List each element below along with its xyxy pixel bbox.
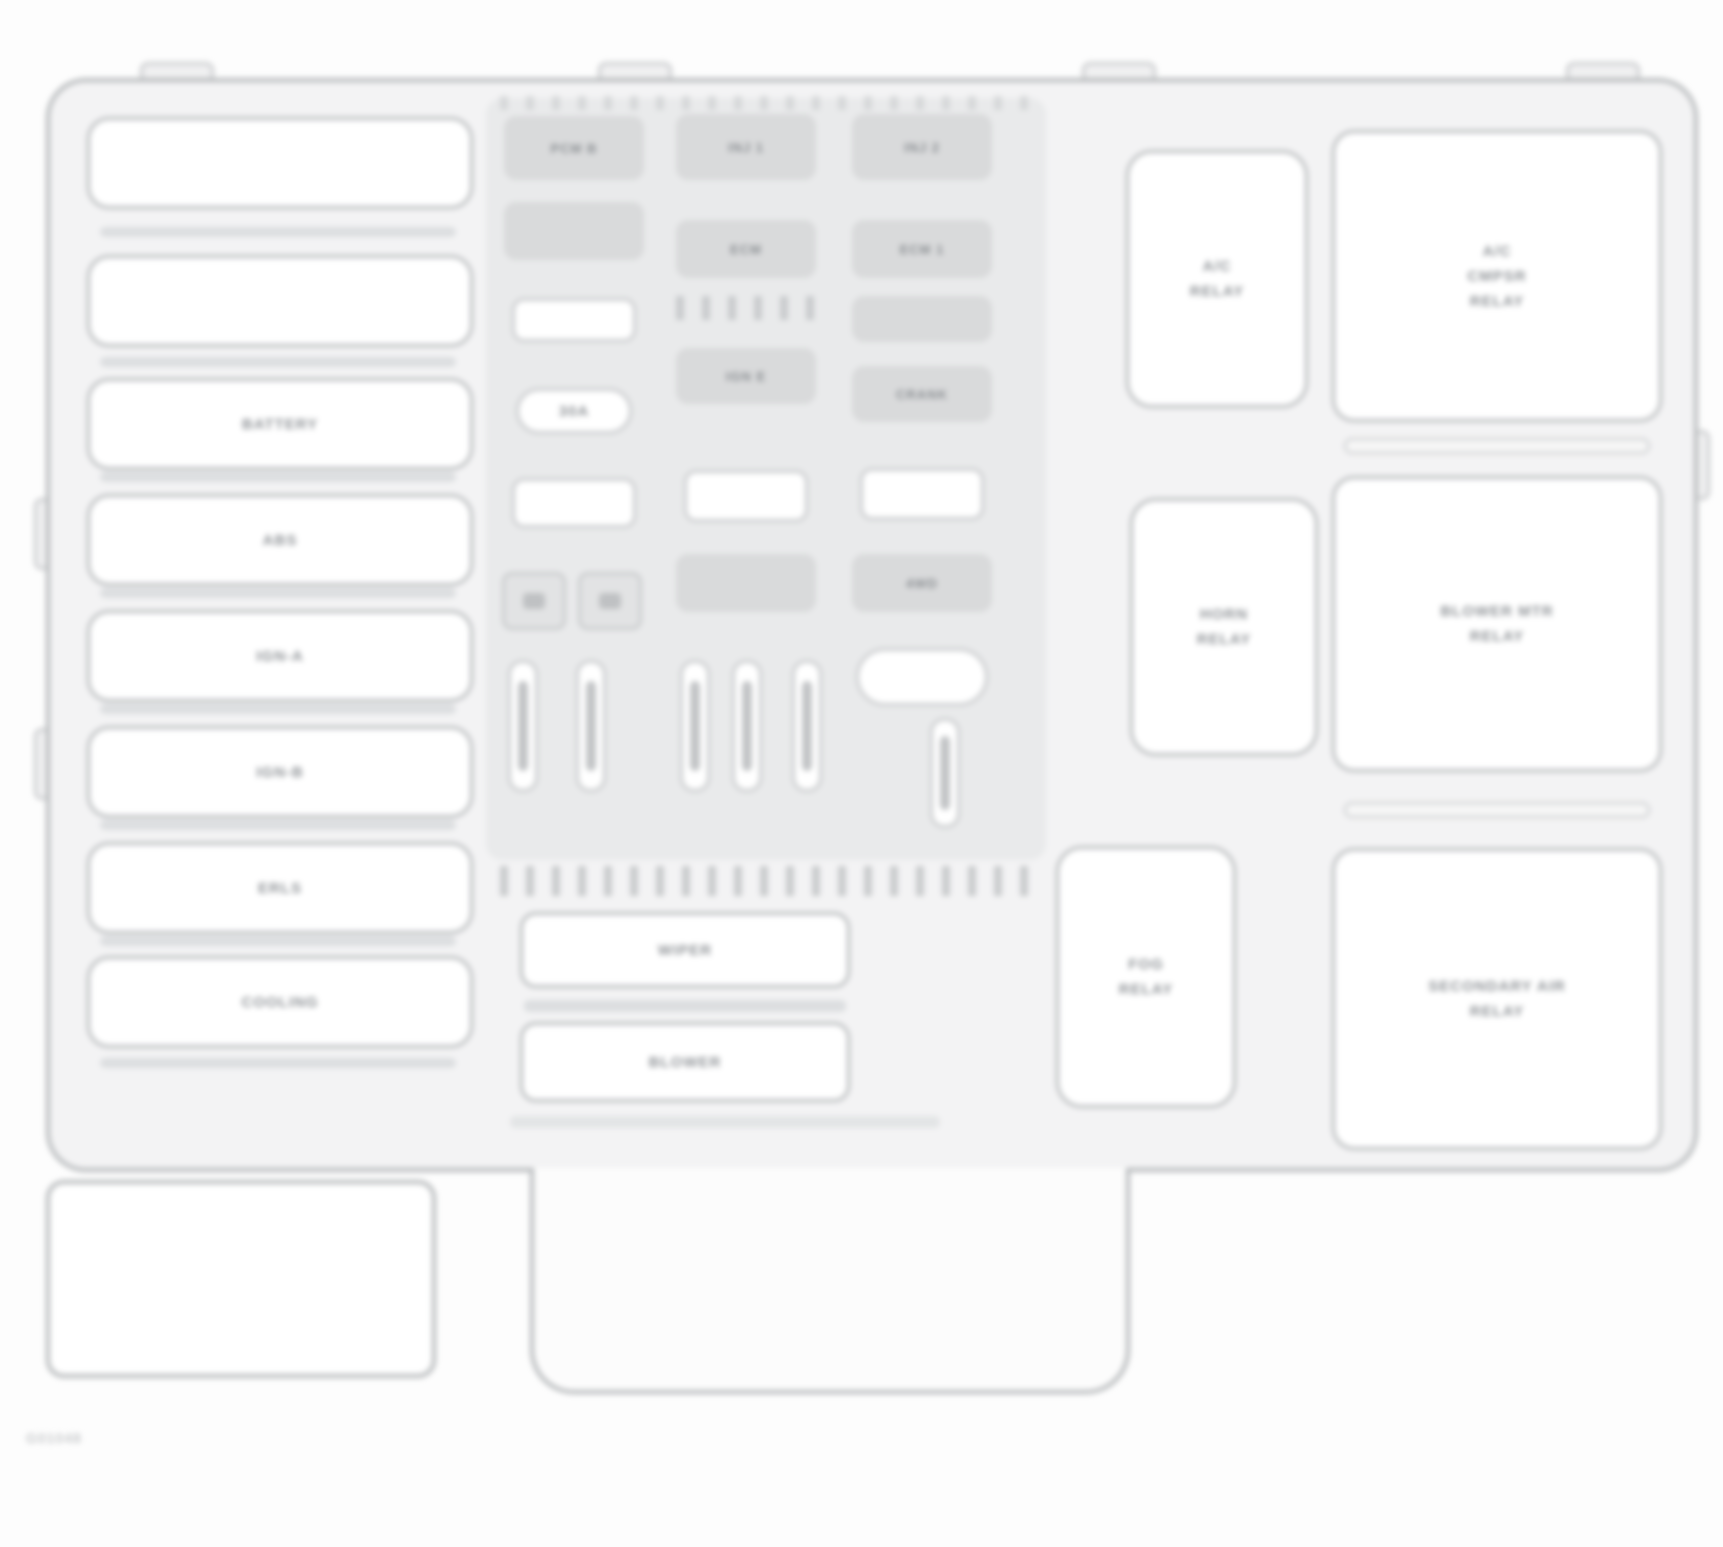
lower-extension xyxy=(530,1168,1130,1394)
fuse-slot xyxy=(512,478,636,528)
maxi-fuse-slot: ERLS xyxy=(87,842,473,934)
relay-label-line: RELAY xyxy=(1197,631,1251,648)
fuse-terminal xyxy=(523,593,545,609)
mini-fuse-element xyxy=(940,736,950,811)
relay-box-large-label: SECONDARY AIRRELAY xyxy=(1335,851,1659,1147)
lower-compartment xyxy=(46,1180,436,1378)
maxi-fuse-slot-label xyxy=(90,258,470,344)
mini-fuse-element xyxy=(586,681,596,772)
divider xyxy=(100,472,456,482)
fuse-pair xyxy=(578,572,642,630)
relay-label-line: RELAY xyxy=(1470,293,1524,310)
fuse-terminal xyxy=(599,593,621,609)
fuse: INJ 1 xyxy=(676,114,816,180)
wide-fuse-slot: WIPER xyxy=(520,912,850,988)
wide-fuse-slot-label: WIPER xyxy=(523,915,847,985)
relay-box-large: A/CCMPSRRELAY xyxy=(1332,130,1662,422)
divider xyxy=(100,227,456,237)
fuse-slot-label: 30A xyxy=(519,391,629,431)
fuse: ECM xyxy=(676,220,816,278)
mini-fuse-element xyxy=(690,681,700,772)
relay-label-line: FOG xyxy=(1128,956,1164,973)
mini-fuse-slot xyxy=(508,660,538,792)
fuse-slot xyxy=(684,470,808,522)
divider xyxy=(1344,438,1650,454)
maxi-fuse-slot-label: ERLS xyxy=(90,845,470,931)
fuse: INJ 2 xyxy=(852,114,992,180)
terminal-comb xyxy=(500,866,1040,896)
relay-label-line: A/C xyxy=(1483,243,1512,260)
mini-fuse-element xyxy=(742,681,752,772)
relay-label-line: A/C xyxy=(1203,258,1232,275)
fuse-label: IGN E xyxy=(676,348,816,404)
maxi-fuse-slot-label: BATTERY xyxy=(90,381,470,467)
mini-fuse-slot xyxy=(930,718,960,828)
relay-label-line: RELAY xyxy=(1119,981,1173,998)
fuse-label: ECM 1 xyxy=(852,220,992,278)
fuse-block-diagram: BATTERYABSIGN-AIGN-BERLSCOOLINGPCM B30AI… xyxy=(0,0,1723,1547)
fuse-slot xyxy=(856,648,988,706)
fuse-slot xyxy=(860,468,984,520)
divider xyxy=(100,1058,456,1068)
divider xyxy=(1344,802,1650,818)
relay-box-label: FOGRELAY xyxy=(1059,849,1233,1105)
fuse-label xyxy=(504,202,644,260)
wide-fuse-slot: BLOWER xyxy=(520,1022,850,1102)
maxi-fuse-slot-label: IGN-B xyxy=(90,729,470,815)
relay-label-line: SECONDARY AIR xyxy=(1428,978,1565,995)
mini-fuse-slot xyxy=(732,660,762,792)
terminal-comb xyxy=(676,296,816,320)
maxi-fuse-slot: BATTERY xyxy=(87,378,473,470)
fuse-label: ECM xyxy=(676,220,816,278)
fuse-label xyxy=(676,554,816,612)
maxi-fuse-slot-label: COOLING xyxy=(90,959,470,1045)
mini-fuse-slot xyxy=(792,660,822,792)
relay-box-large-label: A/CCMPSRRELAY xyxy=(1335,133,1659,419)
fuse-pair xyxy=(502,572,566,630)
fuse xyxy=(504,202,644,260)
relay-box: FOGRELAY xyxy=(1056,846,1236,1108)
fuse-label: INJ 2 xyxy=(852,114,992,180)
fuse: PCM B xyxy=(504,116,644,180)
fuse xyxy=(852,296,992,342)
mini-fuse-element xyxy=(802,681,812,772)
fuse: ECM 1 xyxy=(852,220,992,278)
maxi-fuse-slot: ABS xyxy=(87,494,473,586)
fuse-block-diagram-page: BATTERYABSIGN-AIGN-BERLSCOOLINGPCM B30AI… xyxy=(0,0,1723,1547)
mini-fuse-element xyxy=(518,681,528,772)
maxi-fuse-slot-label: IGN-A xyxy=(90,613,470,699)
relay-box-large-label: BLOWER MTRRELAY xyxy=(1335,479,1659,769)
fuse-label xyxy=(852,296,992,342)
mini-fuse-slot xyxy=(576,660,606,792)
maxi-fuse-slot-label xyxy=(90,120,470,206)
fuse-label: INJ 1 xyxy=(676,114,816,180)
relay-box-label: HORNRELAY xyxy=(1133,501,1315,753)
fuse-slot: 30A xyxy=(516,388,632,434)
divider xyxy=(510,1116,940,1128)
fuse: 4WD xyxy=(852,554,992,612)
fuse: CRANK xyxy=(852,366,992,422)
relay-label-line: RELAY xyxy=(1470,1003,1524,1020)
relay-box: HORNRELAY xyxy=(1130,498,1318,756)
terminal-comb xyxy=(500,96,1040,110)
relay-label-line: RELAY xyxy=(1190,283,1244,300)
divider xyxy=(524,1000,846,1012)
mini-fuse-slot xyxy=(680,660,710,792)
divider xyxy=(100,357,456,367)
fuse-slot-label xyxy=(859,651,985,703)
divider xyxy=(100,588,456,598)
fuse-label: CRANK xyxy=(852,366,992,422)
relay-label-line: HORN xyxy=(1200,606,1248,623)
figure-code: G01048 xyxy=(26,1430,82,1446)
fuse-label: 4WD xyxy=(852,554,992,612)
relay-box: A/CRELAY xyxy=(1126,150,1308,408)
relay-label-line: RELAY xyxy=(1470,628,1524,645)
fuse-slot xyxy=(512,298,636,342)
maxi-fuse-slot xyxy=(87,255,473,347)
divider xyxy=(100,820,456,830)
relay-box-label: A/CRELAY xyxy=(1129,153,1305,405)
relay-label-line: CMPSR xyxy=(1467,268,1526,285)
fuse xyxy=(676,554,816,612)
maxi-fuse-slot: IGN-B xyxy=(87,726,473,818)
maxi-fuse-slot-label: ABS xyxy=(90,497,470,583)
maxi-fuse-slot: IGN-A xyxy=(87,610,473,702)
relay-label-line: BLOWER MTR xyxy=(1440,603,1553,620)
divider xyxy=(100,936,456,946)
maxi-fuse-slot: COOLING xyxy=(87,956,473,1048)
divider xyxy=(100,704,456,714)
fuse: IGN E xyxy=(676,348,816,404)
relay-box-large: SECONDARY AIRRELAY xyxy=(1332,848,1662,1150)
relay-box-large: BLOWER MTRRELAY xyxy=(1332,476,1662,772)
fuse-label: PCM B xyxy=(504,116,644,180)
wide-fuse-slot-label: BLOWER xyxy=(523,1025,847,1099)
maxi-fuse-slot xyxy=(87,117,473,209)
